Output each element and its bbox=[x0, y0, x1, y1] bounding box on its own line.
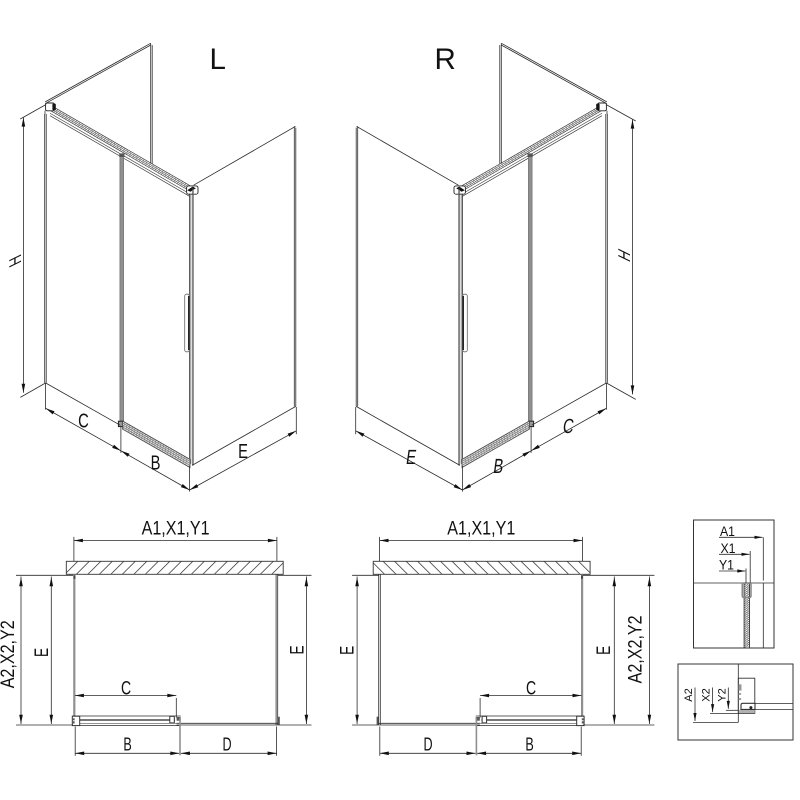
svg-text:C: C bbox=[78, 409, 89, 432]
svg-text:A1: A1 bbox=[720, 523, 735, 539]
svg-text:C: C bbox=[121, 677, 131, 699]
svg-text:E: E bbox=[593, 646, 615, 655]
svg-text:Y2: Y2 bbox=[716, 688, 728, 701]
svg-text:D: D bbox=[423, 735, 432, 755]
svg-text:A2,X2,Y2: A2,X2,Y2 bbox=[0, 620, 19, 688]
svg-text:E: E bbox=[238, 440, 248, 463]
svg-text:A1,X1,Y1: A1,X1,Y1 bbox=[447, 519, 515, 540]
svg-text:Y1: Y1 bbox=[719, 557, 734, 573]
svg-text:X2: X2 bbox=[701, 688, 713, 701]
svg-text:B: B bbox=[525, 735, 533, 755]
svg-text:A2,X2,Y2: A2,X2,Y2 bbox=[626, 615, 647, 683]
svg-text:X1: X1 bbox=[721, 540, 736, 556]
svg-text:D: D bbox=[222, 735, 231, 755]
svg-text:E: E bbox=[336, 646, 358, 655]
svg-text:A1,X1,Y1: A1,X1,Y1 bbox=[142, 519, 210, 540]
svg-text:B: B bbox=[123, 735, 131, 755]
svg-text:C: C bbox=[526, 677, 536, 699]
svg-text:E: E bbox=[286, 645, 308, 654]
svg-text:E: E bbox=[31, 648, 53, 657]
svg-text:L: L bbox=[210, 43, 226, 76]
svg-text:A2: A2 bbox=[683, 688, 695, 701]
svg-text:B: B bbox=[151, 451, 161, 474]
svg-text:R: R bbox=[435, 43, 456, 76]
